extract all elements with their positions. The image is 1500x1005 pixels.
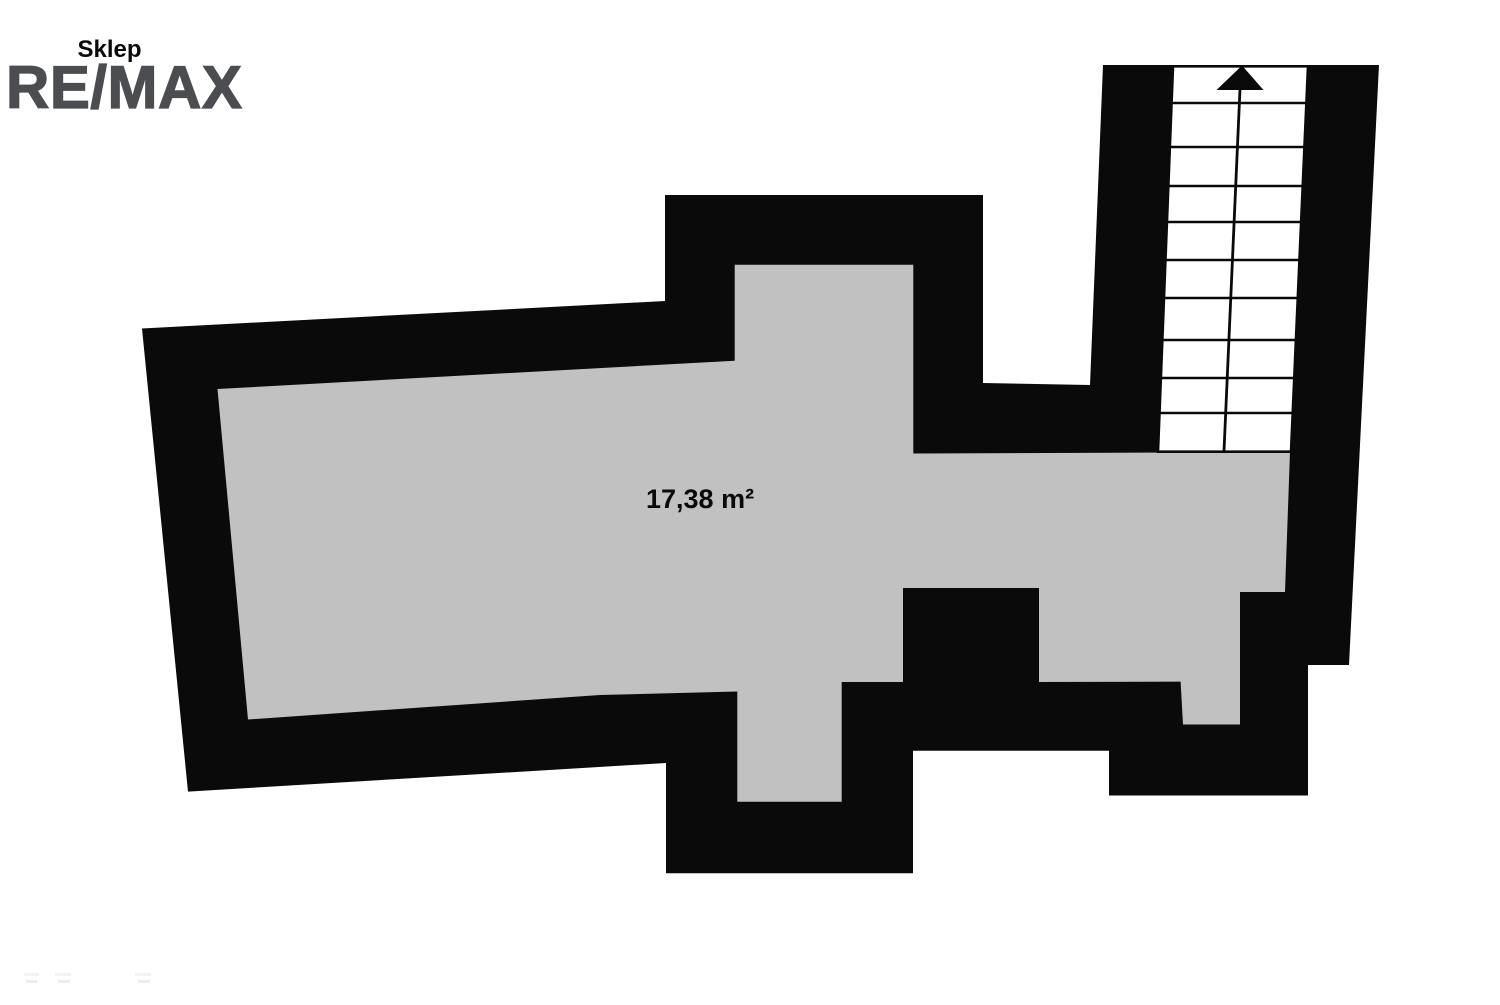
svg-text:17,38 m²: 17,38 m² bbox=[646, 484, 754, 514]
svg-text:RE/MAX: RE/MAX bbox=[6, 54, 242, 121]
